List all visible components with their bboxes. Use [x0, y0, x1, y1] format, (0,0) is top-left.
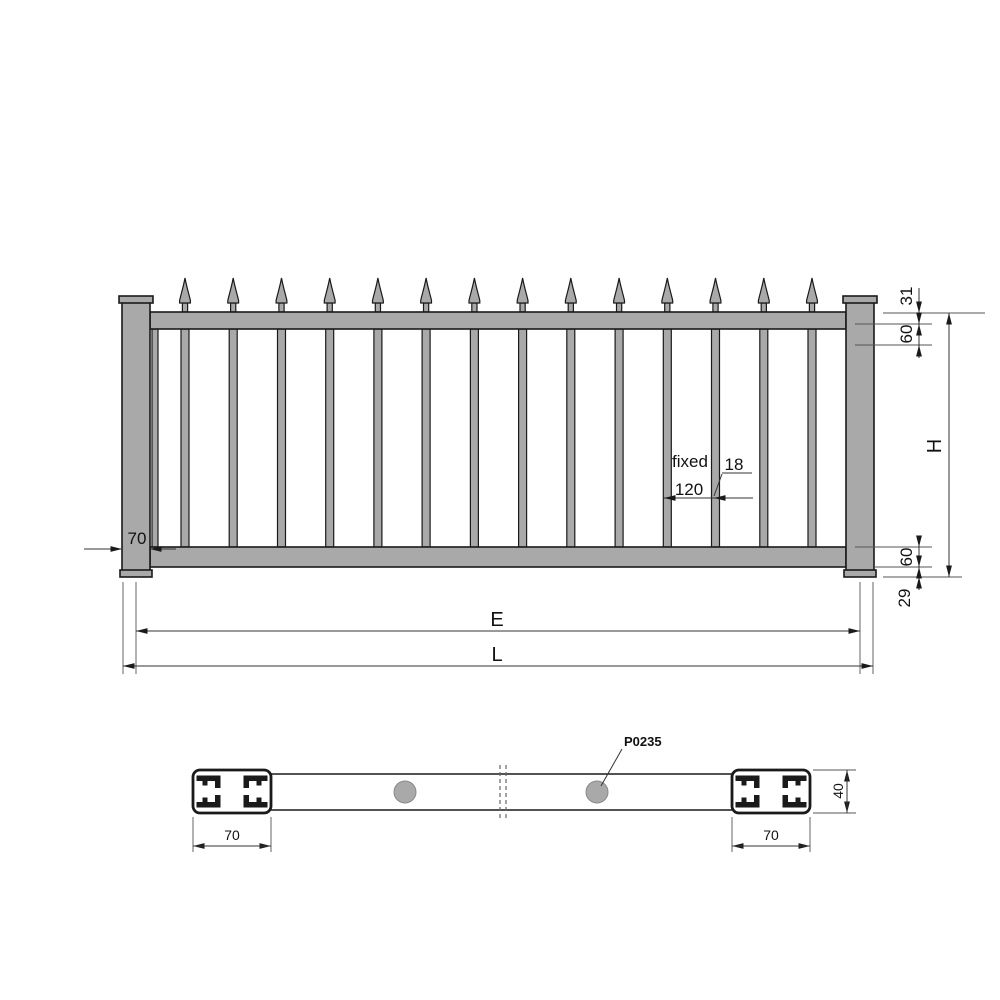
picket: [808, 329, 816, 547]
elevation-view: [119, 278, 877, 577]
spear-finial: [276, 278, 287, 312]
left-post-profile: [193, 770, 271, 813]
dimension-arrowhead: [916, 567, 922, 579]
dimension-arrowhead: [916, 302, 922, 314]
dimension-arrowhead: [111, 546, 123, 552]
dim-picket-width-label: 18: [725, 455, 744, 474]
profile-bracket: [197, 776, 221, 808]
dim-profile-width-left-label: 70: [224, 827, 240, 843]
picket: [181, 329, 189, 547]
dimension-arrowhead: [862, 663, 874, 669]
picket: [519, 329, 527, 547]
spear-finial: [324, 278, 335, 312]
picket: [470, 329, 478, 547]
dimension-arrowhead: [916, 324, 922, 336]
part-label: P0235: [624, 734, 662, 749]
dim-bottom-rail-height-label: 60: [897, 548, 916, 567]
spear-finial: [807, 278, 818, 312]
dim-height-label: H: [924, 439, 946, 453]
picket: [326, 329, 334, 547]
break-line: [500, 765, 506, 820]
dim-span-e-label: E: [490, 609, 503, 631]
left-stub-picket: [152, 329, 158, 547]
right-post: [843, 296, 877, 577]
dimension-arrowhead: [123, 663, 135, 669]
dim-top-rail-height-label: 60: [897, 325, 916, 344]
dimension-arrowhead: [946, 566, 952, 578]
spear-finial: [614, 278, 625, 312]
left-post-base: [120, 570, 152, 577]
spear-finial: [373, 278, 384, 312]
picket-section-circle-right: [586, 781, 608, 803]
spear-finial: [228, 278, 239, 312]
spear-finial: [662, 278, 673, 312]
dim-rail-depth-label: 40: [830, 783, 846, 799]
spear-finial: [758, 278, 769, 312]
right-post-cap: [843, 296, 877, 303]
top-rail: [150, 312, 846, 329]
picket: [229, 329, 237, 547]
picket: [567, 329, 575, 547]
picket: [615, 329, 623, 547]
part-label-leader: [601, 749, 622, 786]
right-post-profile: [732, 770, 810, 813]
dim-finial-offset-label: 31: [897, 287, 916, 306]
spear-finial: [710, 278, 721, 312]
drawing-canvas: 31 60 H 60 29 70 fixed 120 18 E L: [0, 0, 1000, 1000]
spear-finial: [469, 278, 480, 312]
dim-length-l-label: L: [491, 644, 502, 666]
picket: [663, 329, 671, 547]
section-view: P0235 70 70 40: [193, 734, 856, 852]
dimension-arrowhead: [916, 536, 922, 548]
dimension-arrowhead: [916, 313, 922, 325]
dimension-arrowhead: [849, 628, 861, 634]
dim-picket-spacing-label: 120: [675, 480, 703, 499]
picket: [374, 329, 382, 547]
picket: [760, 329, 768, 547]
picket-section-circle-left: [394, 781, 416, 803]
spacing-fixed-label: fixed: [672, 452, 708, 471]
dimension-arrowhead: [916, 556, 922, 568]
dimension-arrowhead: [946, 313, 952, 325]
right-post-base: [844, 570, 876, 577]
dimension-arrowhead: [916, 345, 922, 357]
profile-bracket: [736, 776, 760, 808]
profile-bracket: [244, 776, 268, 808]
dim-bottom-offset-label: 29: [895, 589, 914, 608]
spear-finial: [421, 278, 432, 312]
dim-profile-width-right-label: 70: [763, 827, 779, 843]
spear-finial: [180, 278, 191, 312]
dimension-arrowhead: [136, 628, 148, 634]
dimension-arrowhead: [916, 577, 922, 589]
spear-finial: [565, 278, 576, 312]
bottom-rail: [150, 547, 846, 567]
fence-panel-technical-drawing: 31 60 H 60 29 70 fixed 120 18 E L: [0, 0, 1000, 1000]
dim-post-width-label: 70: [128, 529, 147, 548]
picket: [712, 329, 720, 547]
picket: [422, 329, 430, 547]
spear-finial: [517, 278, 528, 312]
profile-bracket: [783, 776, 807, 808]
picket: [278, 329, 286, 547]
left-post-cap: [119, 296, 153, 303]
